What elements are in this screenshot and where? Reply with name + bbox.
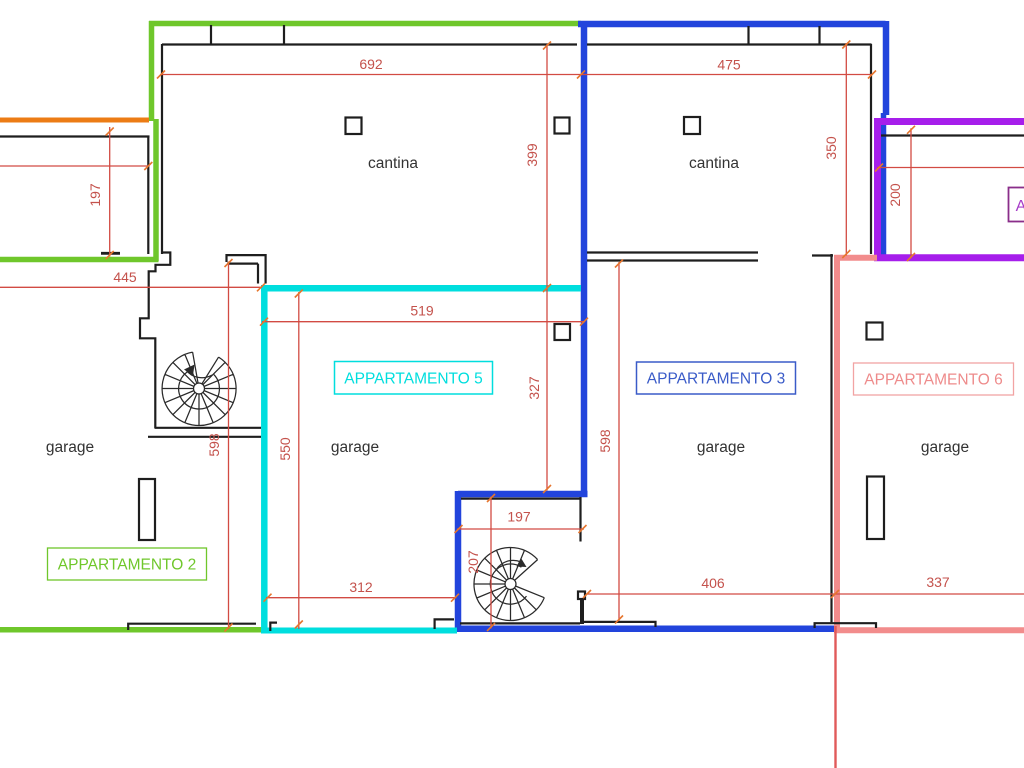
svg-text:598: 598	[597, 429, 613, 453]
svg-text:garage: garage	[331, 439, 379, 456]
svg-text:519: 519	[410, 303, 434, 319]
svg-text:garage: garage	[697, 439, 745, 456]
svg-text:garage: garage	[46, 439, 94, 456]
svg-text:550: 550	[277, 437, 293, 461]
svg-text:APPARTAMENTO 2: APPARTAMENTO 2	[58, 557, 196, 574]
svg-text:312: 312	[349, 579, 373, 595]
svg-text:445: 445	[113, 269, 137, 285]
svg-text:200: 200	[887, 183, 903, 207]
svg-text:692: 692	[359, 56, 383, 72]
svg-text:406: 406	[701, 575, 725, 591]
svg-text:cantina: cantina	[368, 155, 418, 172]
svg-text:598: 598	[206, 433, 222, 457]
svg-text:APPARTAMENTO 3: APPARTAMENTO 3	[647, 371, 785, 388]
svg-text:399: 399	[524, 143, 540, 167]
svg-text:cantina: cantina	[689, 155, 739, 172]
svg-text:APPARTAMENTO 6: APPARTAMENTO 6	[864, 372, 1002, 389]
svg-text:337: 337	[926, 574, 950, 590]
svg-text:A: A	[1016, 198, 1024, 215]
svg-text:207: 207	[465, 550, 481, 574]
svg-text:garage: garage	[921, 439, 969, 456]
svg-text:197: 197	[87, 183, 103, 207]
svg-text:197: 197	[507, 509, 531, 525]
svg-text:APPARTAMENTO 5: APPARTAMENTO 5	[344, 371, 482, 388]
svg-text:350: 350	[823, 136, 839, 160]
svg-text:475: 475	[717, 57, 741, 73]
svg-text:327: 327	[526, 376, 542, 400]
